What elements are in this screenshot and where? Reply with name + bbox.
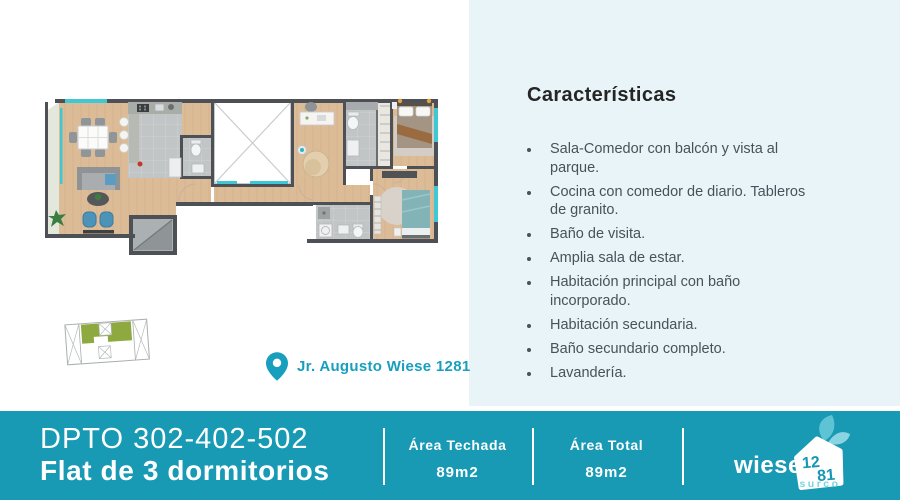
features-section: Características Sala-Comedor con balcón … [527, 84, 827, 388]
area-techada-block: Área Techada 89m2 [383, 437, 532, 481]
closet-floor [378, 102, 392, 166]
throw-pillow [105, 174, 116, 185]
floor-plan [45, 88, 445, 270]
unit-type: Flat de 3 dormitorios [40, 457, 330, 485]
location-row: Jr. Augusto Wiese 1281 [266, 352, 470, 381]
address-text: Jr. Augusto Wiese 1281 [297, 358, 470, 375]
feature-item: Lavandería. [541, 364, 812, 383]
washer [319, 224, 332, 237]
armchair-blue [83, 212, 96, 227]
flyer-page: Jr. Augusto Wiese 1281 Características S… [0, 0, 900, 500]
feature-item: Amplia sala de estar. [541, 249, 812, 268]
corridor-floor [214, 185, 370, 202]
stool [120, 131, 129, 140]
feature-item: Habitación secundaria. [541, 316, 812, 335]
master-bedroom-furniture [392, 99, 434, 156]
leaf-icon [819, 415, 834, 441]
area-total-label: Área Total [532, 437, 681, 453]
tv-console [83, 230, 114, 234]
location-pin-icon [266, 352, 288, 381]
feature-item: Baño de visita. [541, 225, 812, 244]
footer-bar: DPTO 302-402-502 Flat de 3 dormitorios Á… [0, 411, 900, 500]
fridge [169, 158, 181, 177]
nightstand [394, 228, 401, 236]
feature-item: Baño secundario completo. [541, 340, 812, 359]
armchair-blue [100, 212, 113, 227]
features-title: Características [527, 84, 827, 107]
unit-number: DPTO 302-402-502 [40, 425, 330, 454]
void-core [214, 102, 294, 185]
features-list: Sala-Comedor con balcón y vista al parqu… [527, 140, 812, 383]
unit-info: DPTO 302-402-502 Flat de 3 dormitorios [40, 425, 330, 485]
wall-lamp [427, 99, 431, 103]
wall-lamp [398, 99, 402, 103]
stairwell [131, 217, 175, 253]
desk-chair [305, 102, 317, 112]
dresser [382, 171, 417, 178]
brand-district: surco [792, 478, 848, 490]
feature-item: Habitación principal con baño incorporad… [541, 273, 812, 310]
feature-item: Cocina con comedor de diario. Tableros d… [541, 183, 812, 220]
kettle [138, 162, 143, 167]
key-plan [52, 296, 162, 384]
divider [682, 428, 684, 485]
stool [120, 118, 129, 127]
feature-item: Sala-Comedor con balcón y vista al parqu… [541, 140, 812, 177]
stool [120, 144, 129, 153]
area-techada-label: Área Techada [383, 437, 532, 453]
area-total-block: Área Total 89m2 [532, 437, 681, 481]
area-total-value: 89m2 [532, 464, 681, 481]
area-techada-value: 89m2 [383, 464, 532, 481]
